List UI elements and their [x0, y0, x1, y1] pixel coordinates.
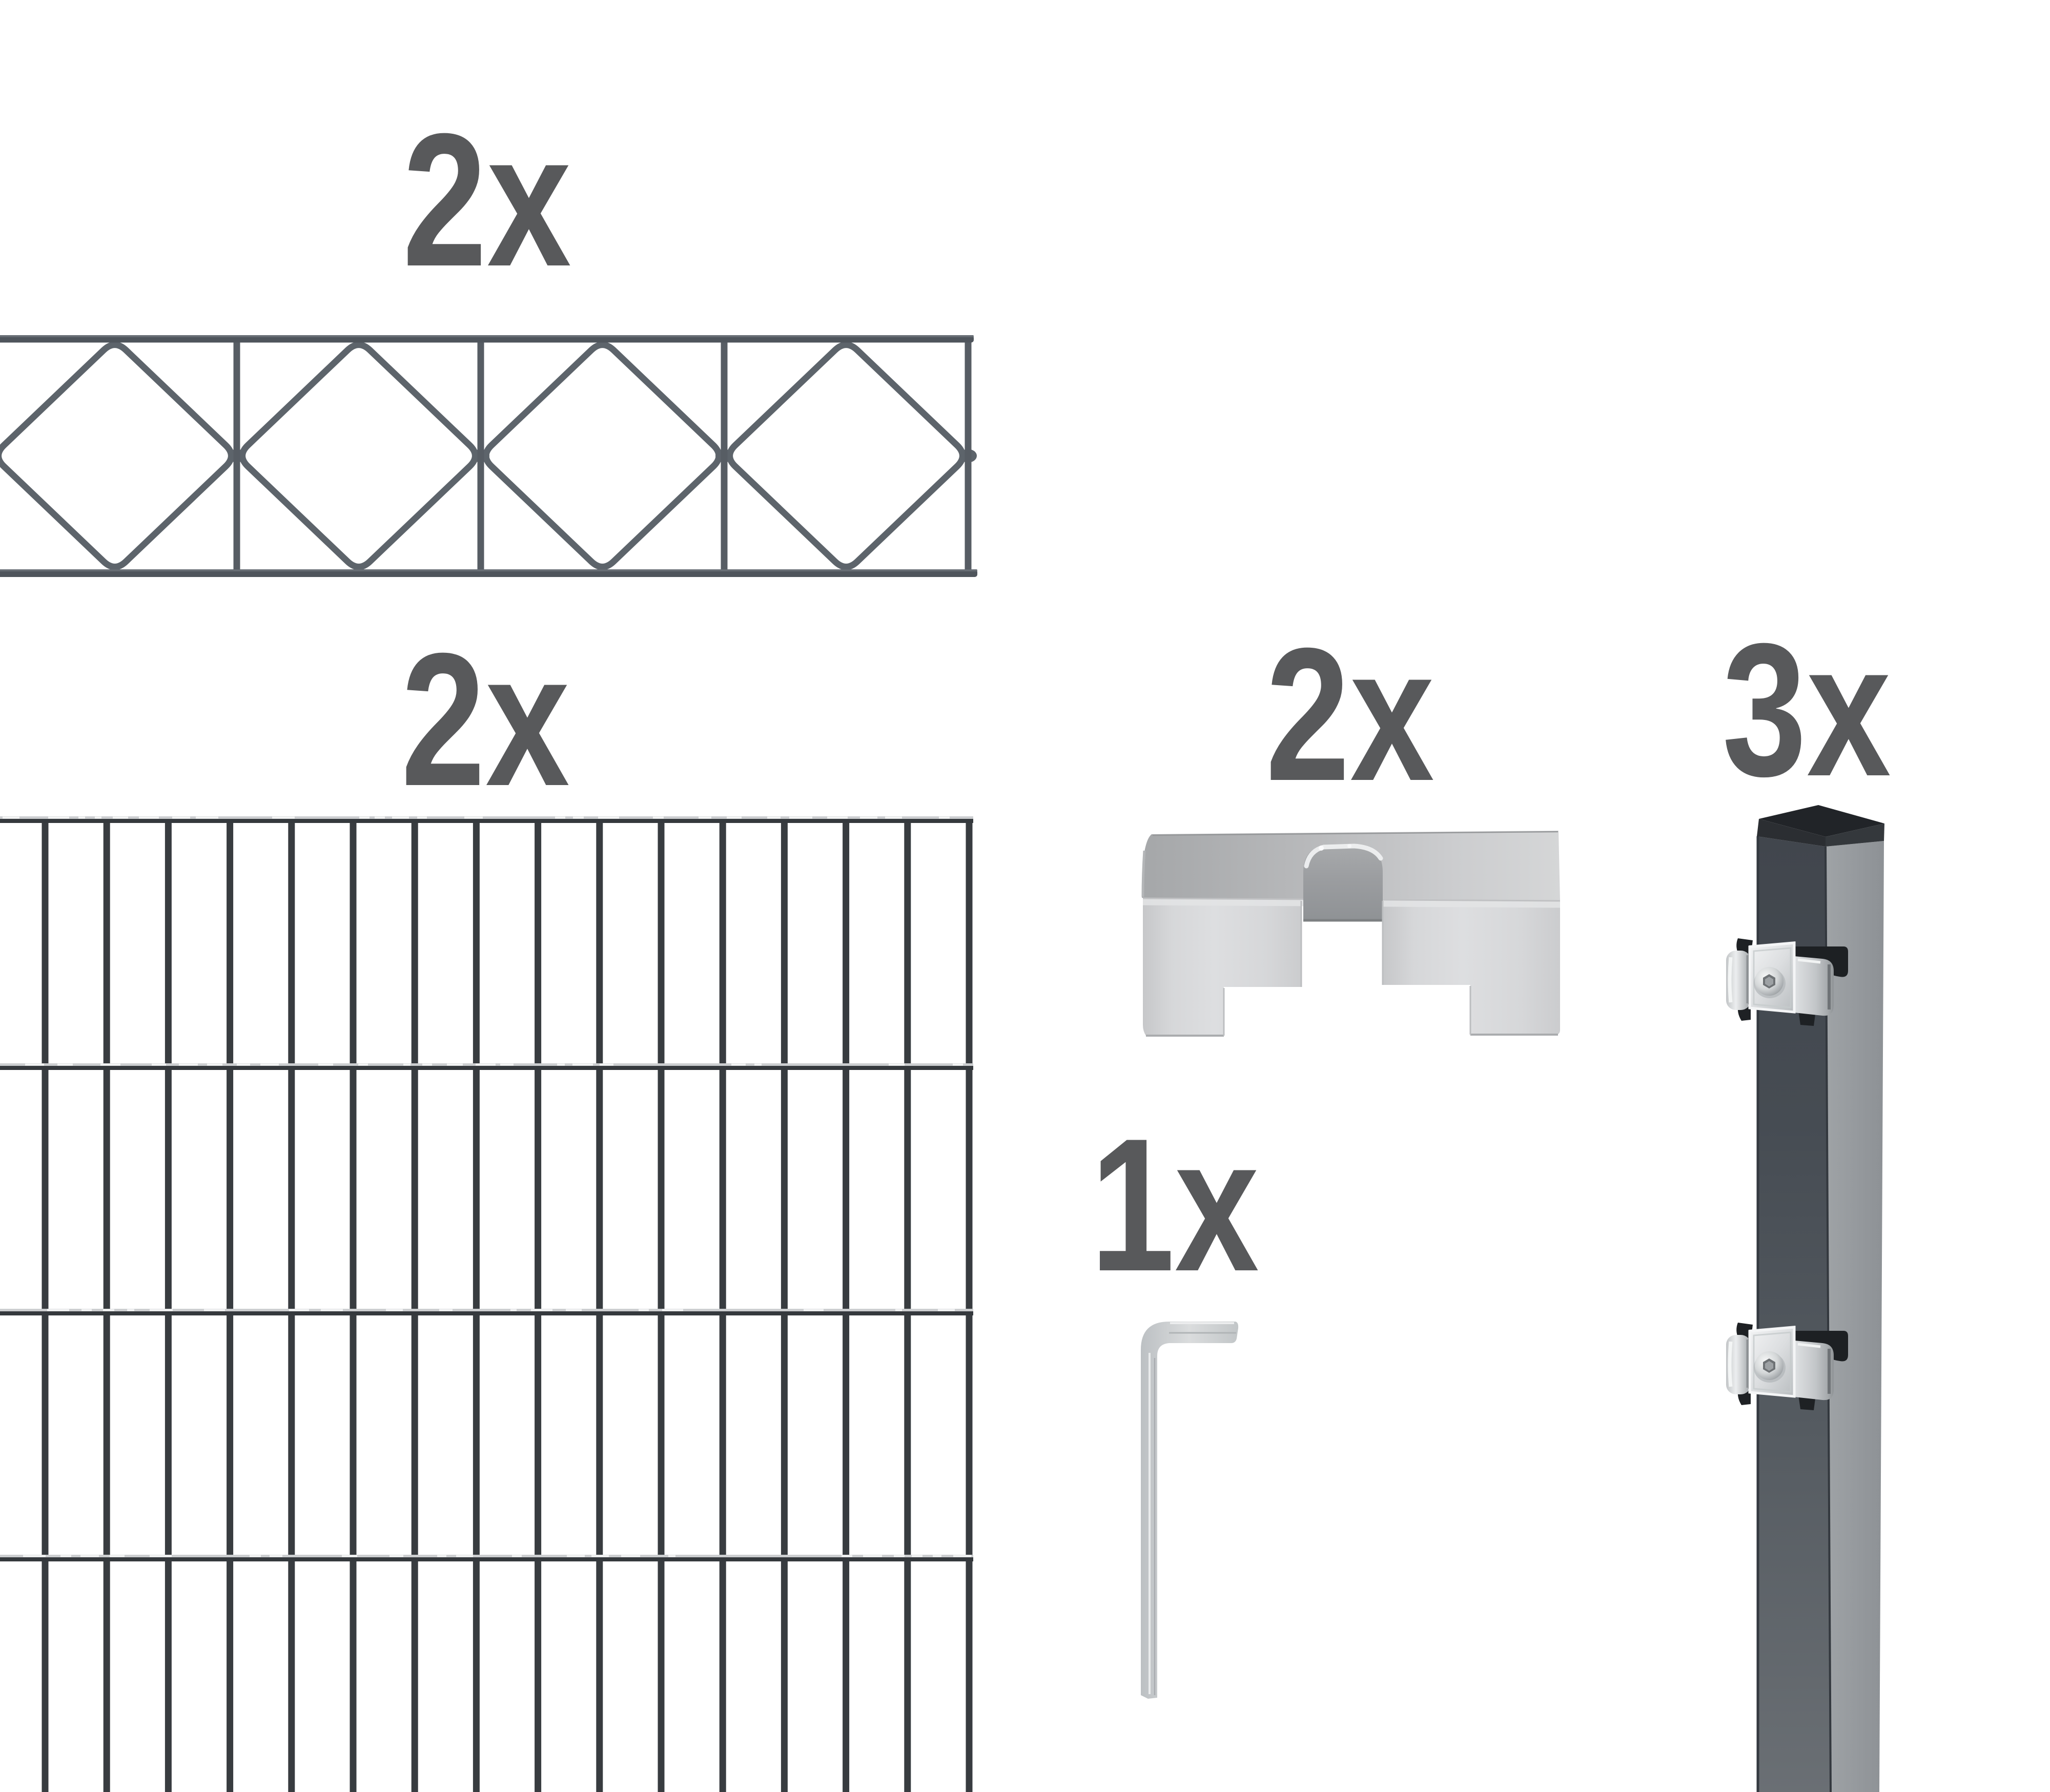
svg-text:2x: 2x: [1265, 608, 1435, 820]
svg-text:2x: 2x: [401, 613, 570, 825]
svg-text:1x: 1x: [1090, 1099, 1260, 1310]
svg-text:2x: 2x: [402, 94, 572, 305]
svg-text:3x: 3x: [1722, 604, 1892, 815]
